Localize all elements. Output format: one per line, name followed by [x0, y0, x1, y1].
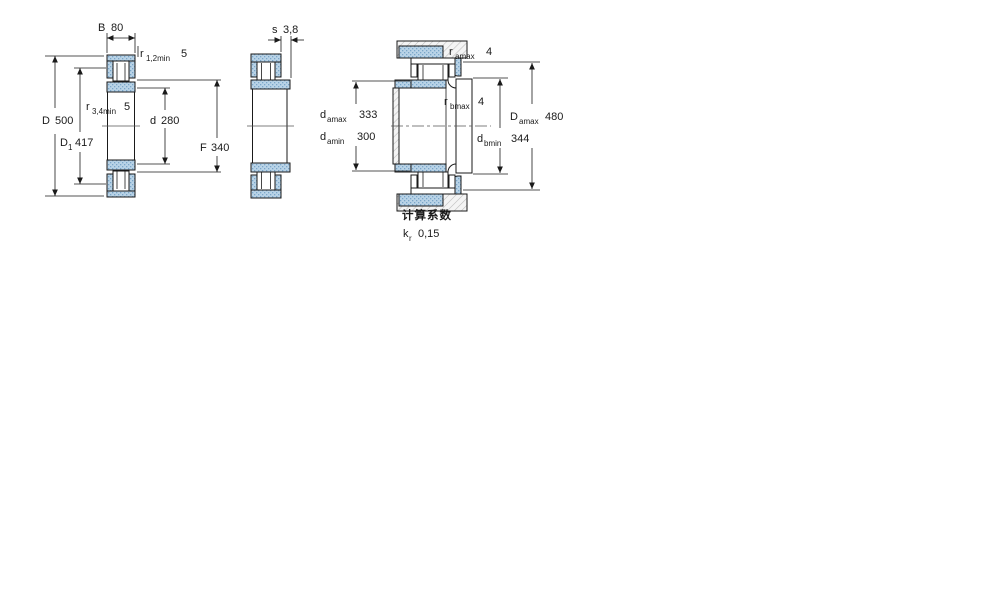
- dim-B-value: 80: [111, 22, 123, 34]
- dim-damax-value: 333: [359, 109, 377, 121]
- dim-rbmax-base: r: [444, 96, 448, 108]
- dim-D1-sub: 1: [68, 143, 73, 152]
- dim-D-label: D: [42, 115, 50, 127]
- dim-F-value: 340: [211, 142, 229, 154]
- outer-ring-bottom: [251, 190, 281, 198]
- dim-d-value: 280: [161, 115, 179, 127]
- dim-D-value: 500: [55, 115, 73, 127]
- dim-ramax-base: r: [449, 46, 453, 58]
- bearing-diagram: B 80 r 1,2min 5 D 500 D 1 417 r 3,4min 5…: [0, 0, 1000, 600]
- inner-ring-bottom: [411, 164, 446, 172]
- outer-ring-bottom: [411, 188, 455, 194]
- dim-damin-base: d: [320, 131, 326, 143]
- bearing-dimension-drawing-page: B 80 r 1,2min 5 D 500 D 1 417 r 3,4min 5…: [0, 0, 1000, 600]
- inner-ring-top-displaced: [251, 80, 290, 89]
- dim-ramax-value: 4: [486, 46, 492, 58]
- dim-r12-value: 5: [181, 48, 187, 60]
- dim-s-label: s: [272, 24, 278, 36]
- dim-dbmin-base: d: [477, 133, 483, 145]
- factor-kr-value: 0,15: [418, 228, 439, 240]
- roller-bottom: [113, 171, 129, 194]
- dim-r34-value: 5: [124, 101, 130, 113]
- dim-D1-base: D: [60, 137, 68, 149]
- factor-kr-sub: r: [409, 234, 412, 243]
- dim-r34-sub: 3,4min: [92, 107, 116, 116]
- dim-damax-sub: amax: [327, 115, 347, 124]
- inner-ring-top: [107, 82, 135, 92]
- outer-ring-flange-right: [129, 61, 135, 78]
- dim-r34-base: r: [86, 101, 90, 113]
- outer-ring-top: [411, 58, 455, 64]
- dim-damax-base: d: [320, 109, 326, 121]
- inner-ring-bottom-displaced: [251, 163, 290, 172]
- outer-ring-bottom: [107, 191, 135, 197]
- inner-ring-top: [411, 80, 446, 88]
- housing-spacer-bottom: [399, 194, 443, 206]
- outer-ring-top: [107, 55, 135, 61]
- calculation-factors-title: 计算系数: [402, 208, 452, 222]
- dim-ramax-sub: amax: [455, 52, 475, 61]
- dim-d-label: d: [150, 115, 156, 127]
- inner-ring-bottom: [107, 160, 135, 170]
- outer-ring-top: [251, 54, 281, 62]
- dim-s-value: 3,8: [283, 24, 298, 36]
- dim-Damax-sub: amax: [519, 117, 539, 126]
- dim-r12-sub: 1,2min: [146, 54, 170, 63]
- dim-dbmin-sub: bmin: [484, 139, 501, 148]
- dim-damin-value: 300: [357, 131, 375, 143]
- dim-F-label: F: [200, 142, 207, 154]
- housing-spacer-top: [399, 46, 443, 58]
- dim-rbmax-sub: bmax: [450, 102, 470, 111]
- outer-ring-flange-left: [107, 61, 113, 78]
- roller-top: [113, 59, 129, 82]
- dim-rbmax-value: 4: [478, 96, 484, 108]
- dim-Damax-base: D: [510, 111, 518, 123]
- dim-Damax-value: 480: [545, 111, 563, 123]
- dim-dbmin-value: 344: [511, 133, 529, 145]
- dim-D1-value: 417: [75, 137, 93, 149]
- bearing-cross-section-left: [102, 55, 140, 197]
- dim-r12-base: r: [140, 48, 144, 60]
- dim-damin-sub: amin: [327, 137, 344, 146]
- dim-B-label: B: [98, 22, 105, 34]
